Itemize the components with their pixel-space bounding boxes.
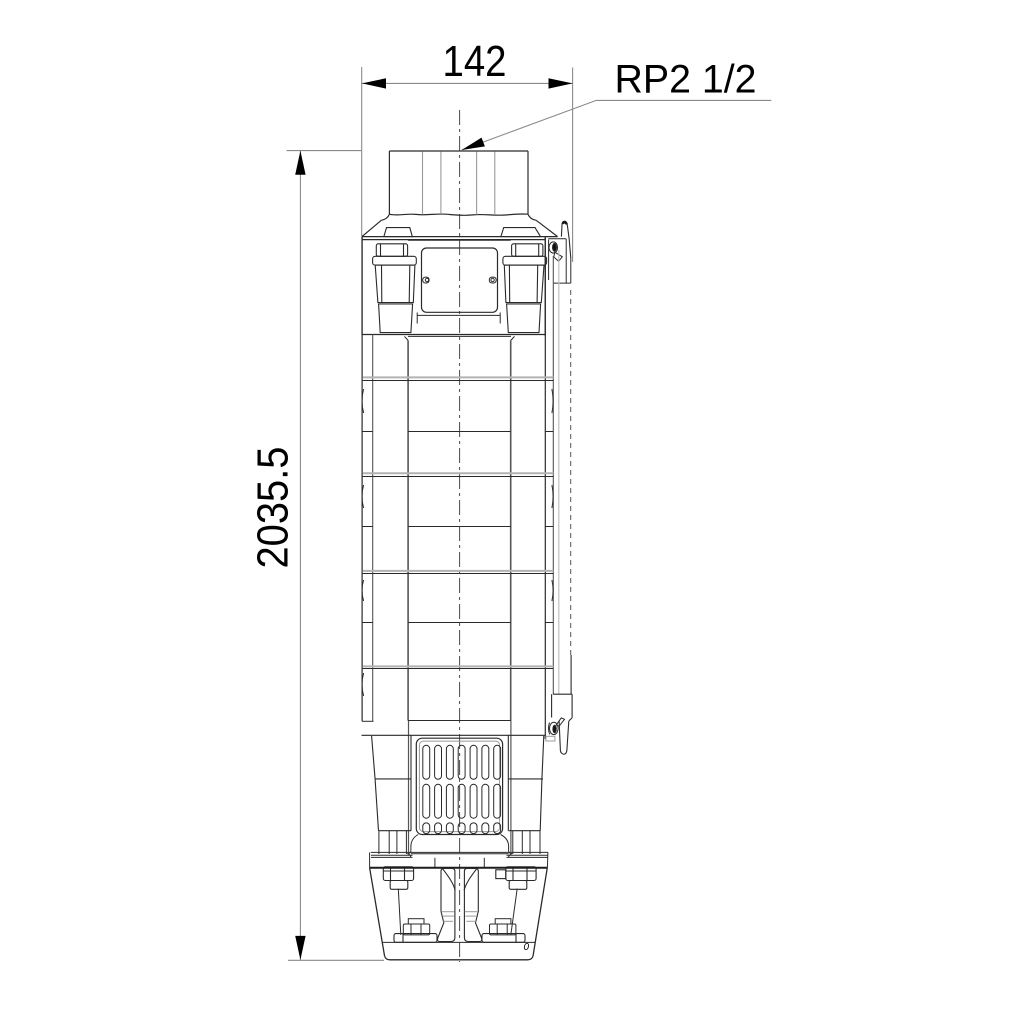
svg-text:RP2 1/2: RP2 1/2 xyxy=(615,57,757,101)
svg-text:0: 0 xyxy=(524,942,530,953)
svg-text:142: 142 xyxy=(443,38,507,86)
svg-text:2035.5: 2035.5 xyxy=(249,447,297,569)
